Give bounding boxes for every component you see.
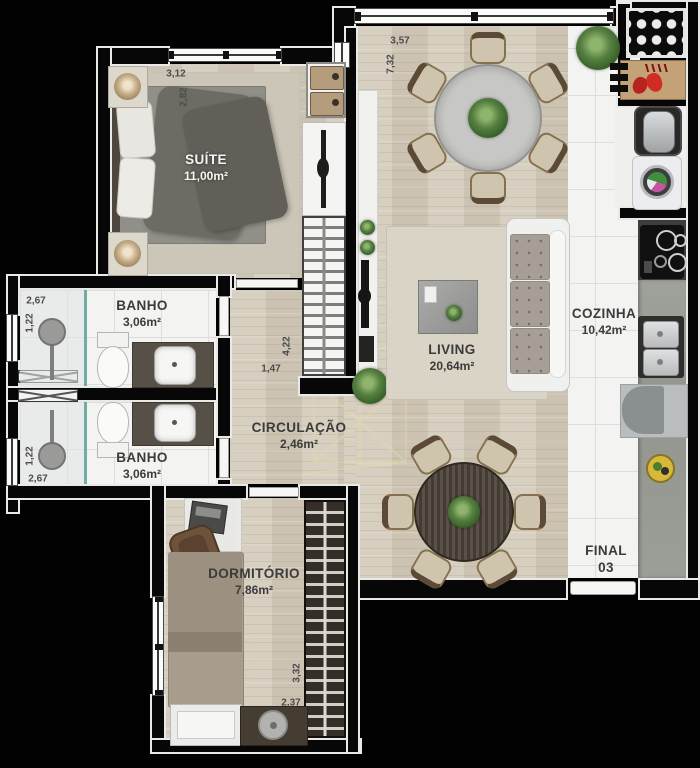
grill-vent-bar [610,74,628,81]
dining-chair [470,32,506,64]
shower-arm [50,344,54,380]
toilet [97,402,129,444]
dim-closet-height: 4,22 [282,336,293,355]
room-label-banho2: BANHO 3,06m² [116,450,168,482]
dim-living-height: 7,32 [386,54,397,73]
dresser-drawer [310,66,344,90]
dim-banho2-width: 2,67 [28,474,47,485]
living-tv [358,288,371,304]
suite-pillow [116,101,157,160]
dim-banho1-width: 2,67 [26,296,45,307]
single-bed-fold [168,632,242,652]
dim-closet-width: 1,47 [261,364,280,375]
cooktop-controls [644,261,652,273]
coffee-table-plant [446,305,462,321]
unit-label: FINAL 03 [585,543,627,577]
sofa-cushion [510,281,550,327]
burner [668,253,687,272]
burner [674,234,687,247]
room-label-dormitorio: DORMITÓRIO 7,86m² [208,566,300,598]
laundry-tank-basin [643,111,675,153]
table-lamp [114,240,141,267]
dim-banho2-height: 1,22 [25,446,36,465]
shower-glass [84,290,87,386]
drawer-knob [332,99,339,106]
suite-pillow [116,157,156,219]
small-plant [360,220,375,235]
pepper [644,71,665,94]
shower-arm [50,410,54,444]
suite-window [168,48,282,62]
table-plant [468,98,508,138]
dresser-bowl [258,710,288,740]
banho2-door [219,438,229,478]
small-plant [360,240,375,255]
coffee-table-paper [424,286,437,303]
room-label-circulacao: CIRCULAÇÃO 2,46m² [252,420,347,452]
washer-clothes [647,172,667,192]
banho1-door [219,296,229,336]
dining-chair [470,172,506,204]
room-label-cozinha: COZINHA 10,42m² [572,306,636,338]
dresser-drawer [310,92,344,116]
drawer-knob [332,73,339,80]
table-plant [448,496,480,528]
table-lamp [114,73,141,100]
media-console [359,336,374,362]
room-label-living: LIVING 20,64m² [428,342,475,374]
suite-door [236,279,298,288]
burner [654,255,667,268]
grill-vent-bar [610,63,628,70]
dormitorio-closet [304,500,346,738]
fruit-bowl [646,454,675,483]
cooktop [640,225,684,279]
banho2-window [6,438,18,486]
dim-dormitorio-height: 3,32 [292,663,303,682]
bed-bench [170,704,242,746]
suite-wardrobe [302,216,346,376]
dining-chair [514,494,546,530]
floor-plant [352,368,388,404]
kitchen-cart-top [622,386,664,434]
toilet [97,346,129,388]
shower-glass [84,402,87,484]
vent-duct [18,389,78,402]
dormitorio-door [249,487,299,497]
dim-living-width: 3,57 [390,36,409,47]
suite-tv [317,158,329,178]
banho1-window [6,314,18,362]
sink-drain [172,362,177,367]
dim-suite-height: 2,82 [179,87,190,106]
sink-basin [643,349,679,376]
dim-banho1-height: 1,22 [25,313,36,332]
heat-mark [643,64,669,72]
room-label-suite: SUÍTE 11,00m² [184,152,228,184]
room-label-banho1: BANHO 3,06m² [116,298,168,330]
dim-dormitorio-width: 2,37 [281,698,300,709]
living-balcony-window [354,8,614,24]
grill-counter [620,60,686,100]
grill-vent-bar [610,85,628,92]
floor-plan: SUÍTE 11,00m² BANHO 3,06m² BANHO 3,06m² … [0,0,700,768]
grill-grate [626,8,686,58]
dim-suite-width: 3,12 [166,69,185,80]
sofa-cushion [510,328,550,374]
shower-head [38,442,66,470]
shower-head [38,318,66,346]
sofa-cushion [510,234,550,280]
dormitorio-window [152,596,164,696]
sofa-backrest [549,230,566,378]
dining-chair [382,494,414,530]
entry-door [570,581,636,595]
sink-basin [643,321,679,348]
sink-drain [172,420,177,425]
